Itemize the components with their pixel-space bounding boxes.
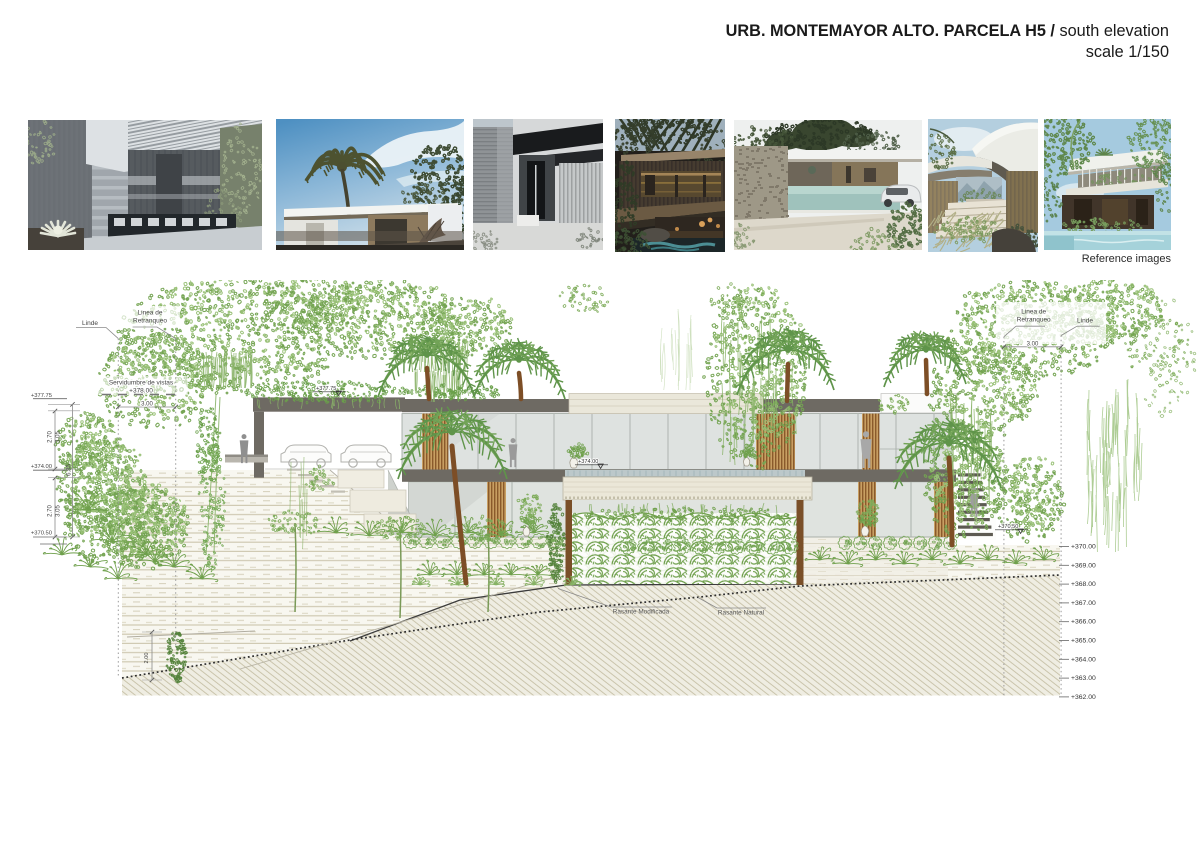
svg-text:+370,50: +370,50: [998, 524, 1018, 530]
svg-text:+365.00: +365.00: [1071, 638, 1096, 645]
svg-text:3.00: 3.00: [141, 402, 153, 408]
svg-text:+369.00: +369.00: [1071, 562, 1096, 569]
svg-text:6.85: 6.85: [67, 464, 73, 476]
svg-text:2.70: 2.70: [48, 431, 54, 443]
svg-text:+377.75: +377.75: [31, 393, 52, 399]
svg-text:3.05: 3.05: [56, 431, 62, 443]
svg-text:+363.00: +363.00: [1071, 675, 1096, 682]
svg-text:+366.00: +366.00: [1071, 619, 1096, 626]
svg-text:+378.00: +378.00: [129, 388, 153, 395]
svg-text:Linde: Linde: [82, 320, 98, 327]
svg-text:+364.00: +364.00: [1071, 656, 1096, 663]
svg-text:Linea de: Linea de: [1021, 309, 1046, 316]
svg-text:+374.00: +374.00: [578, 459, 598, 465]
svg-text:+367.00: +367.00: [1071, 600, 1096, 607]
svg-text:+370.00: +370.00: [1071, 544, 1096, 551]
svg-text:3.05: 3.05: [56, 505, 62, 517]
svg-text:Rasante Modificada: Rasante Modificada: [613, 609, 670, 616]
svg-text:Retranqueo: Retranqueo: [133, 318, 167, 325]
svg-text:+370.50: +370.50: [31, 531, 52, 537]
svg-text:2.70: 2.70: [48, 505, 54, 517]
svg-text:Linde: Linde: [1077, 318, 1093, 325]
svg-text:Servidumbre de vistas: Servidumbre de vistas: [109, 380, 174, 387]
svg-text:+362.00: +362.00: [1071, 694, 1096, 701]
svg-text:+377.75: +377.75: [316, 386, 336, 392]
svg-text:Rasante Natural: Rasante Natural: [718, 610, 764, 617]
svg-text:2.00: 2.00: [144, 653, 150, 664]
svg-text:3.00: 3.00: [1027, 341, 1039, 347]
svg-text:Linea de: Linea de: [138, 310, 163, 317]
svg-text:+368.00: +368.00: [1071, 581, 1096, 588]
svg-text:Retranqueo: Retranqueo: [1017, 317, 1051, 324]
